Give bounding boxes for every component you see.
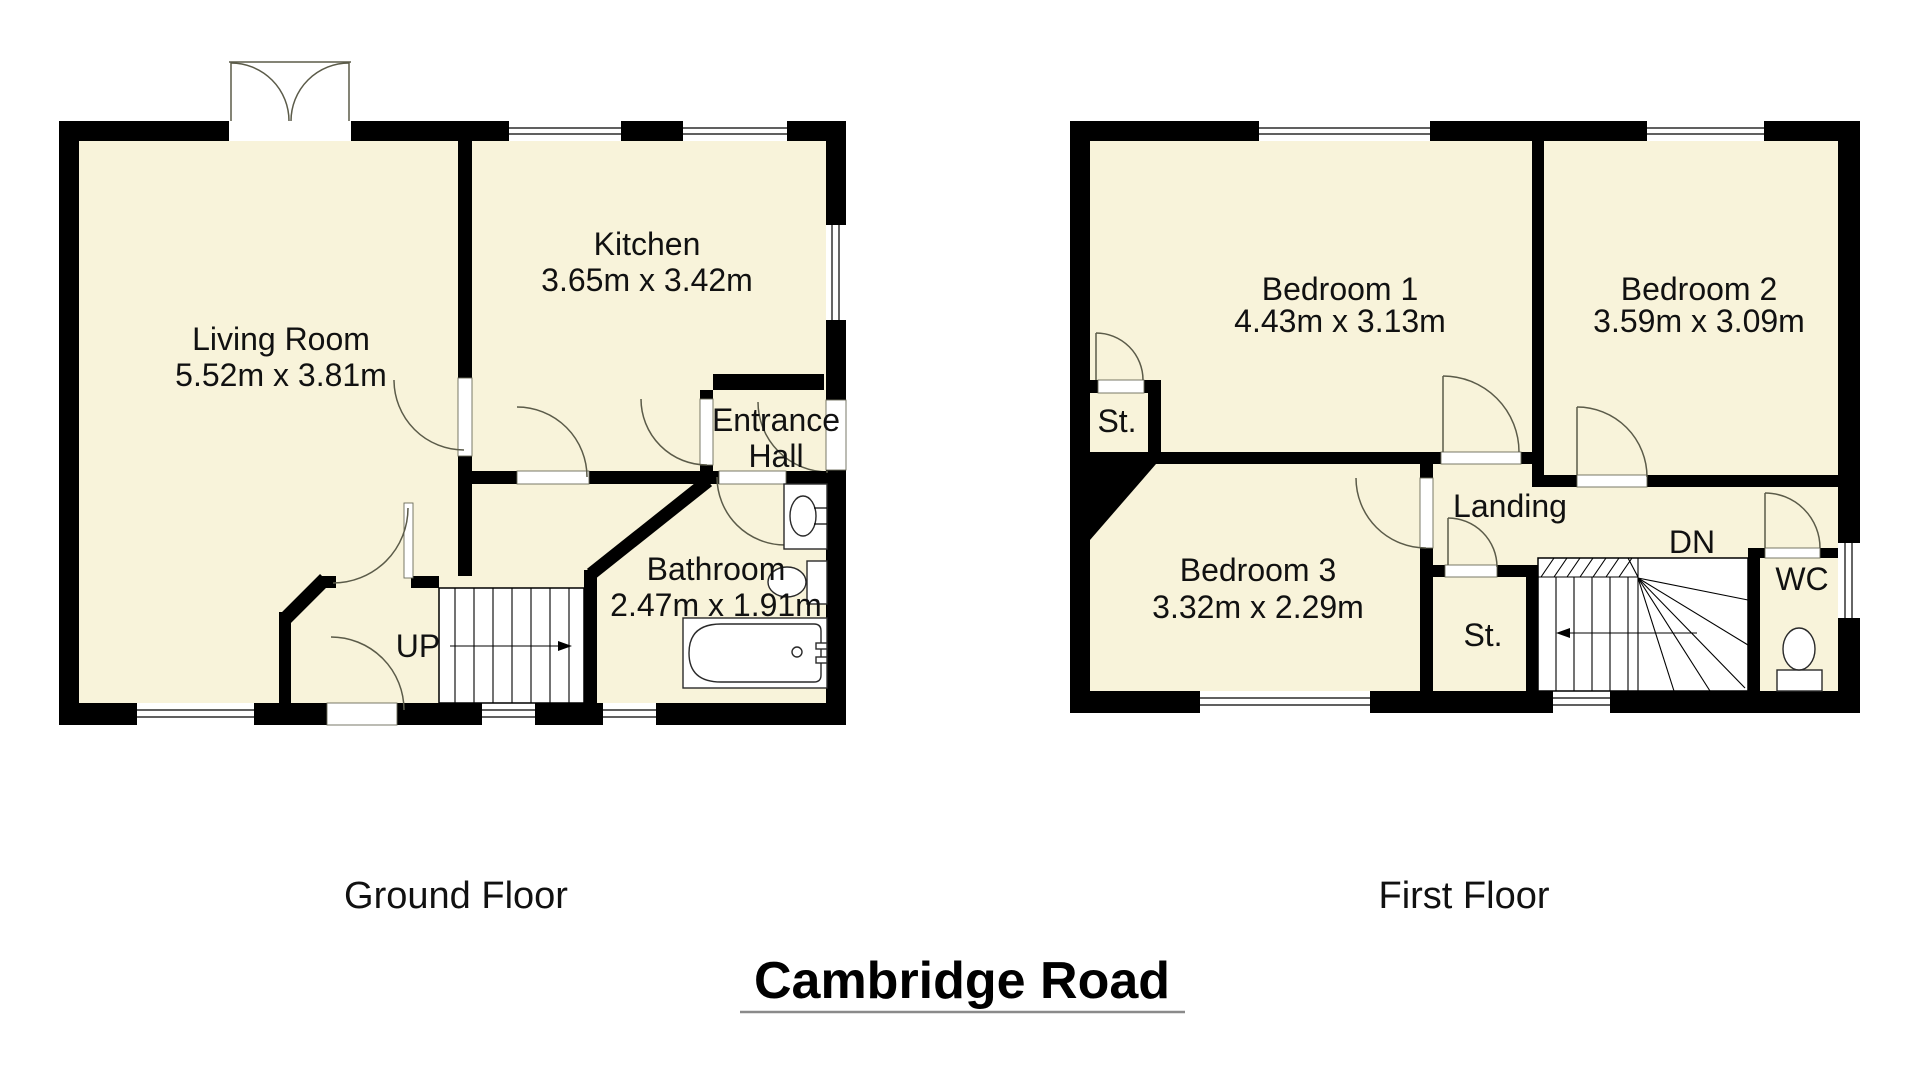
stairs-down: [1538, 558, 1748, 691]
stairs-up: [439, 588, 584, 703]
ground-window-bottom-2: [603, 703, 656, 725]
wall-bed3-right-upper: [1420, 464, 1433, 478]
bathroom-label: Bathroom: [647, 551, 786, 587]
wall-hall-top: [713, 374, 824, 390]
wall-connector-bottom: [700, 465, 713, 471]
wall-st1-left-stub: [1090, 380, 1098, 393]
wall-bed1-bed2: [1532, 141, 1544, 475]
bathroom-basin: [784, 484, 827, 549]
wall-wc-top-right: [1820, 548, 1838, 558]
wall-bed1-bottom-stub: [1521, 452, 1532, 464]
page-title: Cambridge Road: [754, 952, 1170, 1010]
storage1-label: St.: [1097, 403, 1136, 439]
landing-label: Landing: [1453, 488, 1567, 524]
wall-bathroom-stub: [713, 471, 719, 484]
ground-window-top-1: [509, 121, 621, 141]
first-window-bottom-under-stairs: [1553, 691, 1610, 713]
wall-bed2-bottom-right: [1647, 475, 1838, 487]
kitchen-label: Kitchen: [594, 226, 701, 262]
bathtub: [683, 618, 827, 688]
floorplan-page: Living Room 5.52m x 3.81m Kitchen 3.65m …: [0, 0, 1920, 1079]
wall-st2-top-left: [1433, 565, 1445, 577]
wc-label: WC: [1775, 561, 1828, 597]
first-floor-caption: First Floor: [1379, 875, 1550, 917]
first-wall-right: [1838, 121, 1860, 713]
ground-wall-left: [59, 121, 79, 725]
entrance-hall-label-line2: Hall: [748, 438, 803, 474]
wall-st2-right: [1526, 565, 1538, 691]
first-window-right: [1838, 543, 1860, 618]
wall-bed3-right-lower: [1420, 548, 1433, 691]
wall-stairs-right: [584, 570, 597, 703]
ground-floor-plan: Living Room 5.52m x 3.81m Kitchen 3.65m …: [59, 62, 846, 725]
entrance-hall-label-line1: Entrance: [712, 402, 840, 438]
floor-plan-drawing: Living Room 5.52m x 3.81m Kitchen 3.65m …: [0, 0, 1920, 1079]
bedroom3-dims: 3.32m x 2.29m: [1152, 589, 1364, 625]
storage2-label: St.: [1463, 617, 1502, 653]
ground-floor-caption: Ground Floor: [344, 875, 568, 917]
first-floor-plan: Bedroom 1 4.43m x 3.13m Bedroom 2 3.59m …: [1070, 121, 1860, 713]
wall-living-kitchen: [458, 141, 472, 378]
first-wall-bottom: [1070, 691, 1860, 713]
wall-stairhall-right-stub: [411, 576, 439, 588]
stairs-down-label: DN: [1669, 524, 1715, 560]
stairs-up-label: UP: [396, 628, 440, 664]
bathroom-dims: 2.47m x 1.91m: [610, 587, 822, 623]
wall-st1-right: [1148, 380, 1161, 464]
wall-wc-top-stub: [1760, 548, 1765, 558]
living-room-label: Living Room: [192, 321, 370, 357]
bedroom1-dims: 4.43m x 3.13m: [1234, 303, 1446, 339]
wall-kitchen-bottom-left: [458, 471, 517, 484]
bedroom3-label: Bedroom 3: [1180, 552, 1337, 588]
wall-stairs-right-first: [1748, 548, 1760, 691]
bedroom2-label: Bedroom 2: [1621, 271, 1778, 307]
first-wall-left: [1070, 121, 1090, 713]
ground-window-top-2: [683, 121, 787, 141]
first-window-top-2: [1647, 121, 1764, 141]
wall-bed2-bottom-left: [1532, 475, 1577, 487]
ground-window-bottom-1: [137, 703, 254, 725]
french-doors: [229, 62, 351, 141]
living-room-dims: 5.52m x 3.81m: [175, 357, 387, 393]
wall-connector-top: [700, 390, 713, 399]
kitchen-dims: 3.65m x 3.42m: [541, 262, 753, 298]
bedroom1-label: Bedroom 1: [1262, 271, 1419, 307]
ground-window-right: [826, 225, 846, 320]
ground-window-bottom-under-stairs: [482, 703, 535, 725]
first-window-top-1: [1259, 121, 1430, 141]
wall-bed1-bottom: [1090, 452, 1441, 464]
wall-vestibule: [279, 612, 291, 703]
bedroom2-dims: 3.59m x 3.09m: [1593, 303, 1805, 339]
first-window-bottom-1: [1200, 691, 1370, 713]
wall-kitchen-bottom-right: [589, 471, 713, 484]
